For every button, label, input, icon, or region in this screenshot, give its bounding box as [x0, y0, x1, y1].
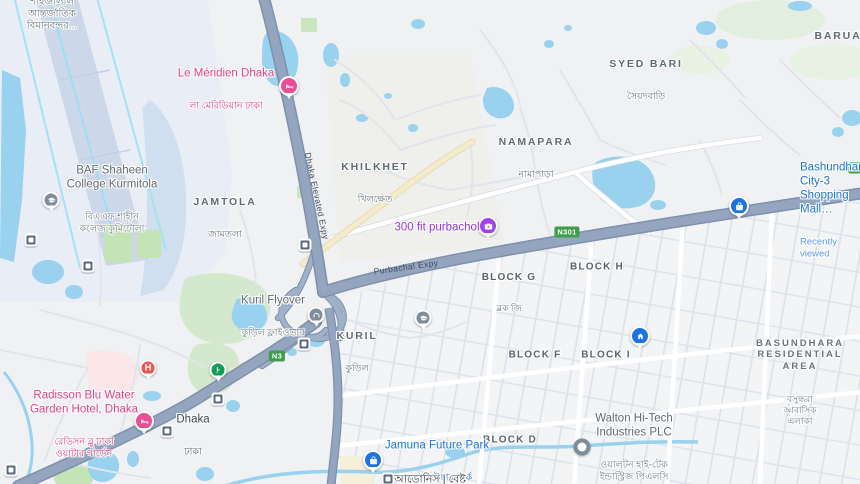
bus-stop-icon[interactable] — [25, 234, 38, 247]
area-label-kuril: KURIL কুড়িল — [336, 310, 377, 394]
transit-glyph — [86, 264, 91, 269]
poi-adonis-label[interactable]: আডোনিস | বেষ্ট — [394, 452, 466, 484]
poi-walton-bn: ওয়ালটন হাই-টেক ইন্ডাস্ট্রিজ পিএলসি — [595, 460, 673, 483]
poi-purbachol-label[interactable]: 300 fit purbachol — [394, 200, 479, 253]
poi-jamuna-name: Jamuna Future Park — [385, 438, 489, 452]
poi-radisson-name: Radisson Blu Water Garden Hotel, Dhaka — [30, 388, 138, 416]
poi-adonis-bn: আডোনিস | বেষ্ট — [394, 473, 466, 484]
area-label-block-g: BLOCK G ব্লক জি — [482, 252, 537, 334]
area-label-kuril-bn: কুড়িল — [336, 363, 377, 375]
bus-stop-icon[interactable] — [5, 464, 18, 477]
transit-glyph — [29, 238, 34, 243]
area-label-syed-bari: SYED BARI সৈয়দবাড়ি — [609, 38, 682, 122]
poi-bashundhara-mall-label[interactable]: Bashundhara City-3 Shopping Mall… Recent… — [800, 141, 860, 280]
area-label-airport: শাহজালাল আন্তর্জাতিক বিমানবন্দর... — [27, 0, 77, 52]
poi-kuril-flyover-label[interactable]: Kuril Flyover কুড়িল ফ্লাইওভার — [241, 273, 305, 358]
road-shield-n301: N301 — [554, 227, 579, 238]
area-label-khilkhet-en: KHILKHET — [341, 161, 408, 174]
station-dhaka-bn: ঢাকা — [176, 446, 209, 458]
poi-baf-college-name: BAF Shaheen College Kurmitola — [67, 163, 158, 191]
poi-bashundhara-mall-status: Recently viewed — [800, 237, 860, 260]
hospital-pin[interactable]: H — [140, 360, 157, 377]
area-label-block-f-en: BLOCK F — [509, 349, 562, 361]
bridge-icon — [310, 309, 323, 322]
poi-bashundhara-mall-pin[interactable] — [729, 196, 749, 216]
poi-le-meridien-name: Le Méridien Dhaka — [178, 66, 275, 80]
poi-le-meridien-pin[interactable] — [279, 76, 299, 96]
poi-baf-college-pin[interactable] — [43, 192, 60, 209]
shopping-bag-icon — [365, 452, 381, 468]
poi-baf-college-label[interactable]: BAF Shaheen College Kurmitola বিএএফ শাহী… — [67, 144, 158, 255]
area-label-basundhara: BASUNDHARA RESIDENTIAL AREA বসুন্ধরা আবা… — [756, 318, 844, 446]
area-label-namapara-bn: নামাপাড়া — [499, 169, 574, 181]
station-dhaka-label[interactable]: Dhaka ঢাকা — [176, 392, 209, 477]
poi-kuril-flyover-pin[interactable] — [308, 307, 325, 324]
graduation-cap-icon — [417, 312, 430, 325]
area-label-syed-bari-bn: সৈয়দবাড়ি — [609, 91, 682, 103]
area-label-block-f: BLOCK F — [509, 329, 562, 380]
hospital-h-icon: H — [142, 362, 155, 375]
golf-pin[interactable] — [210, 362, 227, 379]
area-label-barua-en: BARUA — [815, 30, 860, 43]
area-label-block-h-en: BLOCK H — [570, 261, 624, 273]
home-icon — [632, 328, 648, 344]
area-label-basundhara-bn: বসুন্ধরা আবাসিক এলাকা — [756, 394, 844, 427]
area-label-airport-bn: শাহজালাল আন্তর্জাতিক বিমানবন্দর... — [27, 0, 77, 33]
area-label-block-i: BLOCK I — [581, 329, 631, 380]
area-label-block-d-en: BLOCK D — [483, 434, 537, 446]
poi-purbachol-pin[interactable] — [478, 216, 498, 236]
area-label-barua: BARUA — [815, 10, 860, 62]
hospital-h-glyph: H — [145, 363, 152, 373]
golf-flag-icon — [212, 364, 225, 377]
poi-purbachol-name: 300 fit purbachol — [394, 220, 479, 234]
transit-station-icon[interactable] — [161, 425, 174, 438]
poi-walton-pin[interactable] — [574, 439, 591, 456]
area-label-basundhara-en: BASUNDHARA RESIDENTIAL AREA — [756, 337, 844, 372]
area-label-jamtola-en: JAMTOLA — [193, 196, 256, 209]
poi-kuril-flyover-name: Kuril Flyover — [241, 293, 305, 307]
bus-stop-icon[interactable] — [82, 260, 95, 273]
area-label-namapara: NAMAPARA নামাপাড়া — [499, 116, 574, 200]
hotel-bed-icon — [136, 413, 152, 429]
area-label-namapara-en: NAMAPARA — [499, 136, 574, 149]
area-label-kuril-en: KURIL — [336, 330, 377, 343]
poi-baf-college-bn: বিএএফ শাহীন কলেজ কুর্মিটোলা — [67, 212, 158, 235]
transit-glyph — [303, 243, 308, 248]
hotel-bed-icon — [281, 78, 297, 94]
area-label-jamtola: JAMTOLA জামতলা — [193, 176, 256, 260]
camera-icon — [480, 218, 496, 234]
bus-stop-icon[interactable] — [212, 393, 225, 406]
transit-glyph — [9, 468, 14, 473]
transit-glyph — [216, 397, 221, 402]
area-label-block-h: BLOCK H — [570, 241, 624, 292]
poi-walton-name: Walton Hi-Tech Industries PLC — [595, 411, 673, 439]
metro-station-icon[interactable] — [299, 239, 312, 252]
transit-glyph — [165, 429, 170, 434]
area-label-block-g-bn: ব্লক জি — [482, 303, 537, 314]
shopping-bag-icon — [731, 198, 747, 214]
home-saved-place-pin[interactable] — [630, 326, 650, 346]
poi-bashundhara-mall-name: Bashundhara City-3 Shopping Mall… — [800, 160, 860, 216]
poi-le-meridien-label[interactable]: Le Méridien Dhaka লা মেরিডিয়ান ঢাকা — [178, 46, 275, 131]
poi-kuril-flyover-bn: কুড়িল ফ্লাইওভার — [241, 327, 305, 339]
poi-radisson-label[interactable]: Radisson Blu Water Garden Hotel, Dhaka র… — [30, 369, 138, 480]
area-label-block-i-en: BLOCK I — [581, 349, 631, 361]
poi-le-meridien-bn: লা মেরিডিয়ান ঢাকা — [178, 100, 275, 112]
graduation-cap-icon — [45, 194, 58, 207]
poi-radisson-bn: রেডিসন ব্লু ঢাকা ওয়াটার গার্ডেন — [30, 437, 138, 460]
area-label-block-g-en: BLOCK G — [482, 272, 537, 284]
area-label-block-d: BLOCK D — [483, 414, 537, 465]
area-label-jamtola-bn: জামতলা — [193, 229, 256, 241]
school-pin[interactable] — [415, 310, 432, 327]
station-dhaka-name: Dhaka — [176, 412, 209, 426]
area-label-syed-bari-en: SYED BARI — [609, 58, 682, 71]
map-canvas[interactable]: Dhaka Elevated Expy Purbachal Expy N3 N3… — [0, 0, 860, 484]
poi-walton-label[interactable]: Walton Hi-Tech Industries PLC ওয়ালটন হা… — [595, 392, 673, 484]
poi-jamuna-pin[interactable] — [363, 450, 383, 470]
